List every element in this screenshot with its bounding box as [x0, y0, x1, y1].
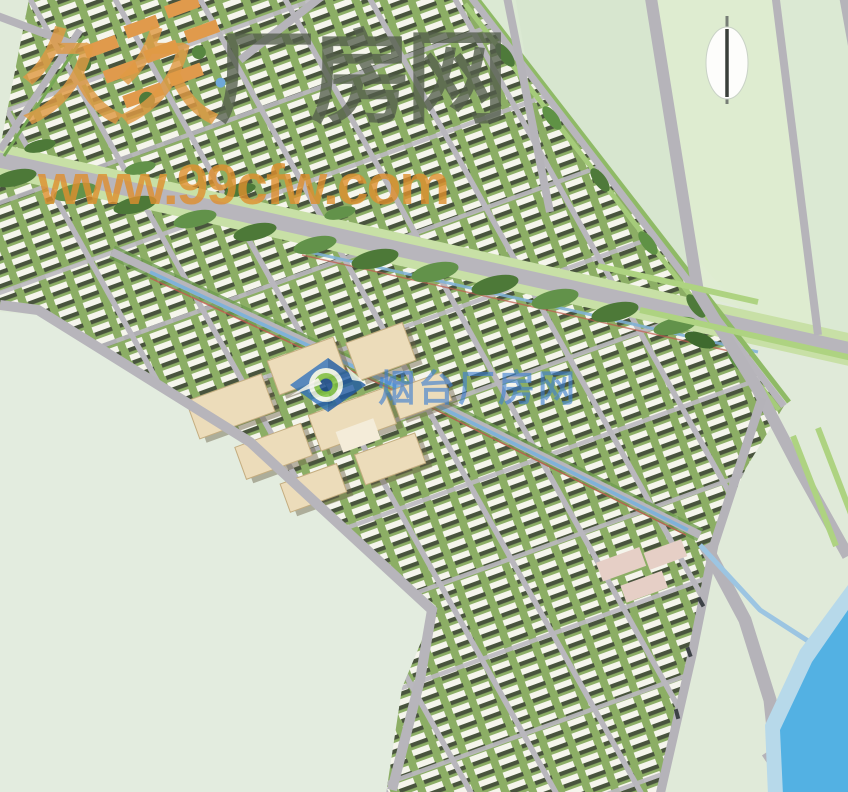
map-canvas — [0, 0, 848, 792]
site-plan-image: 久久厂房网 www.99cfw.com 烟台厂房网 — [0, 0, 848, 792]
